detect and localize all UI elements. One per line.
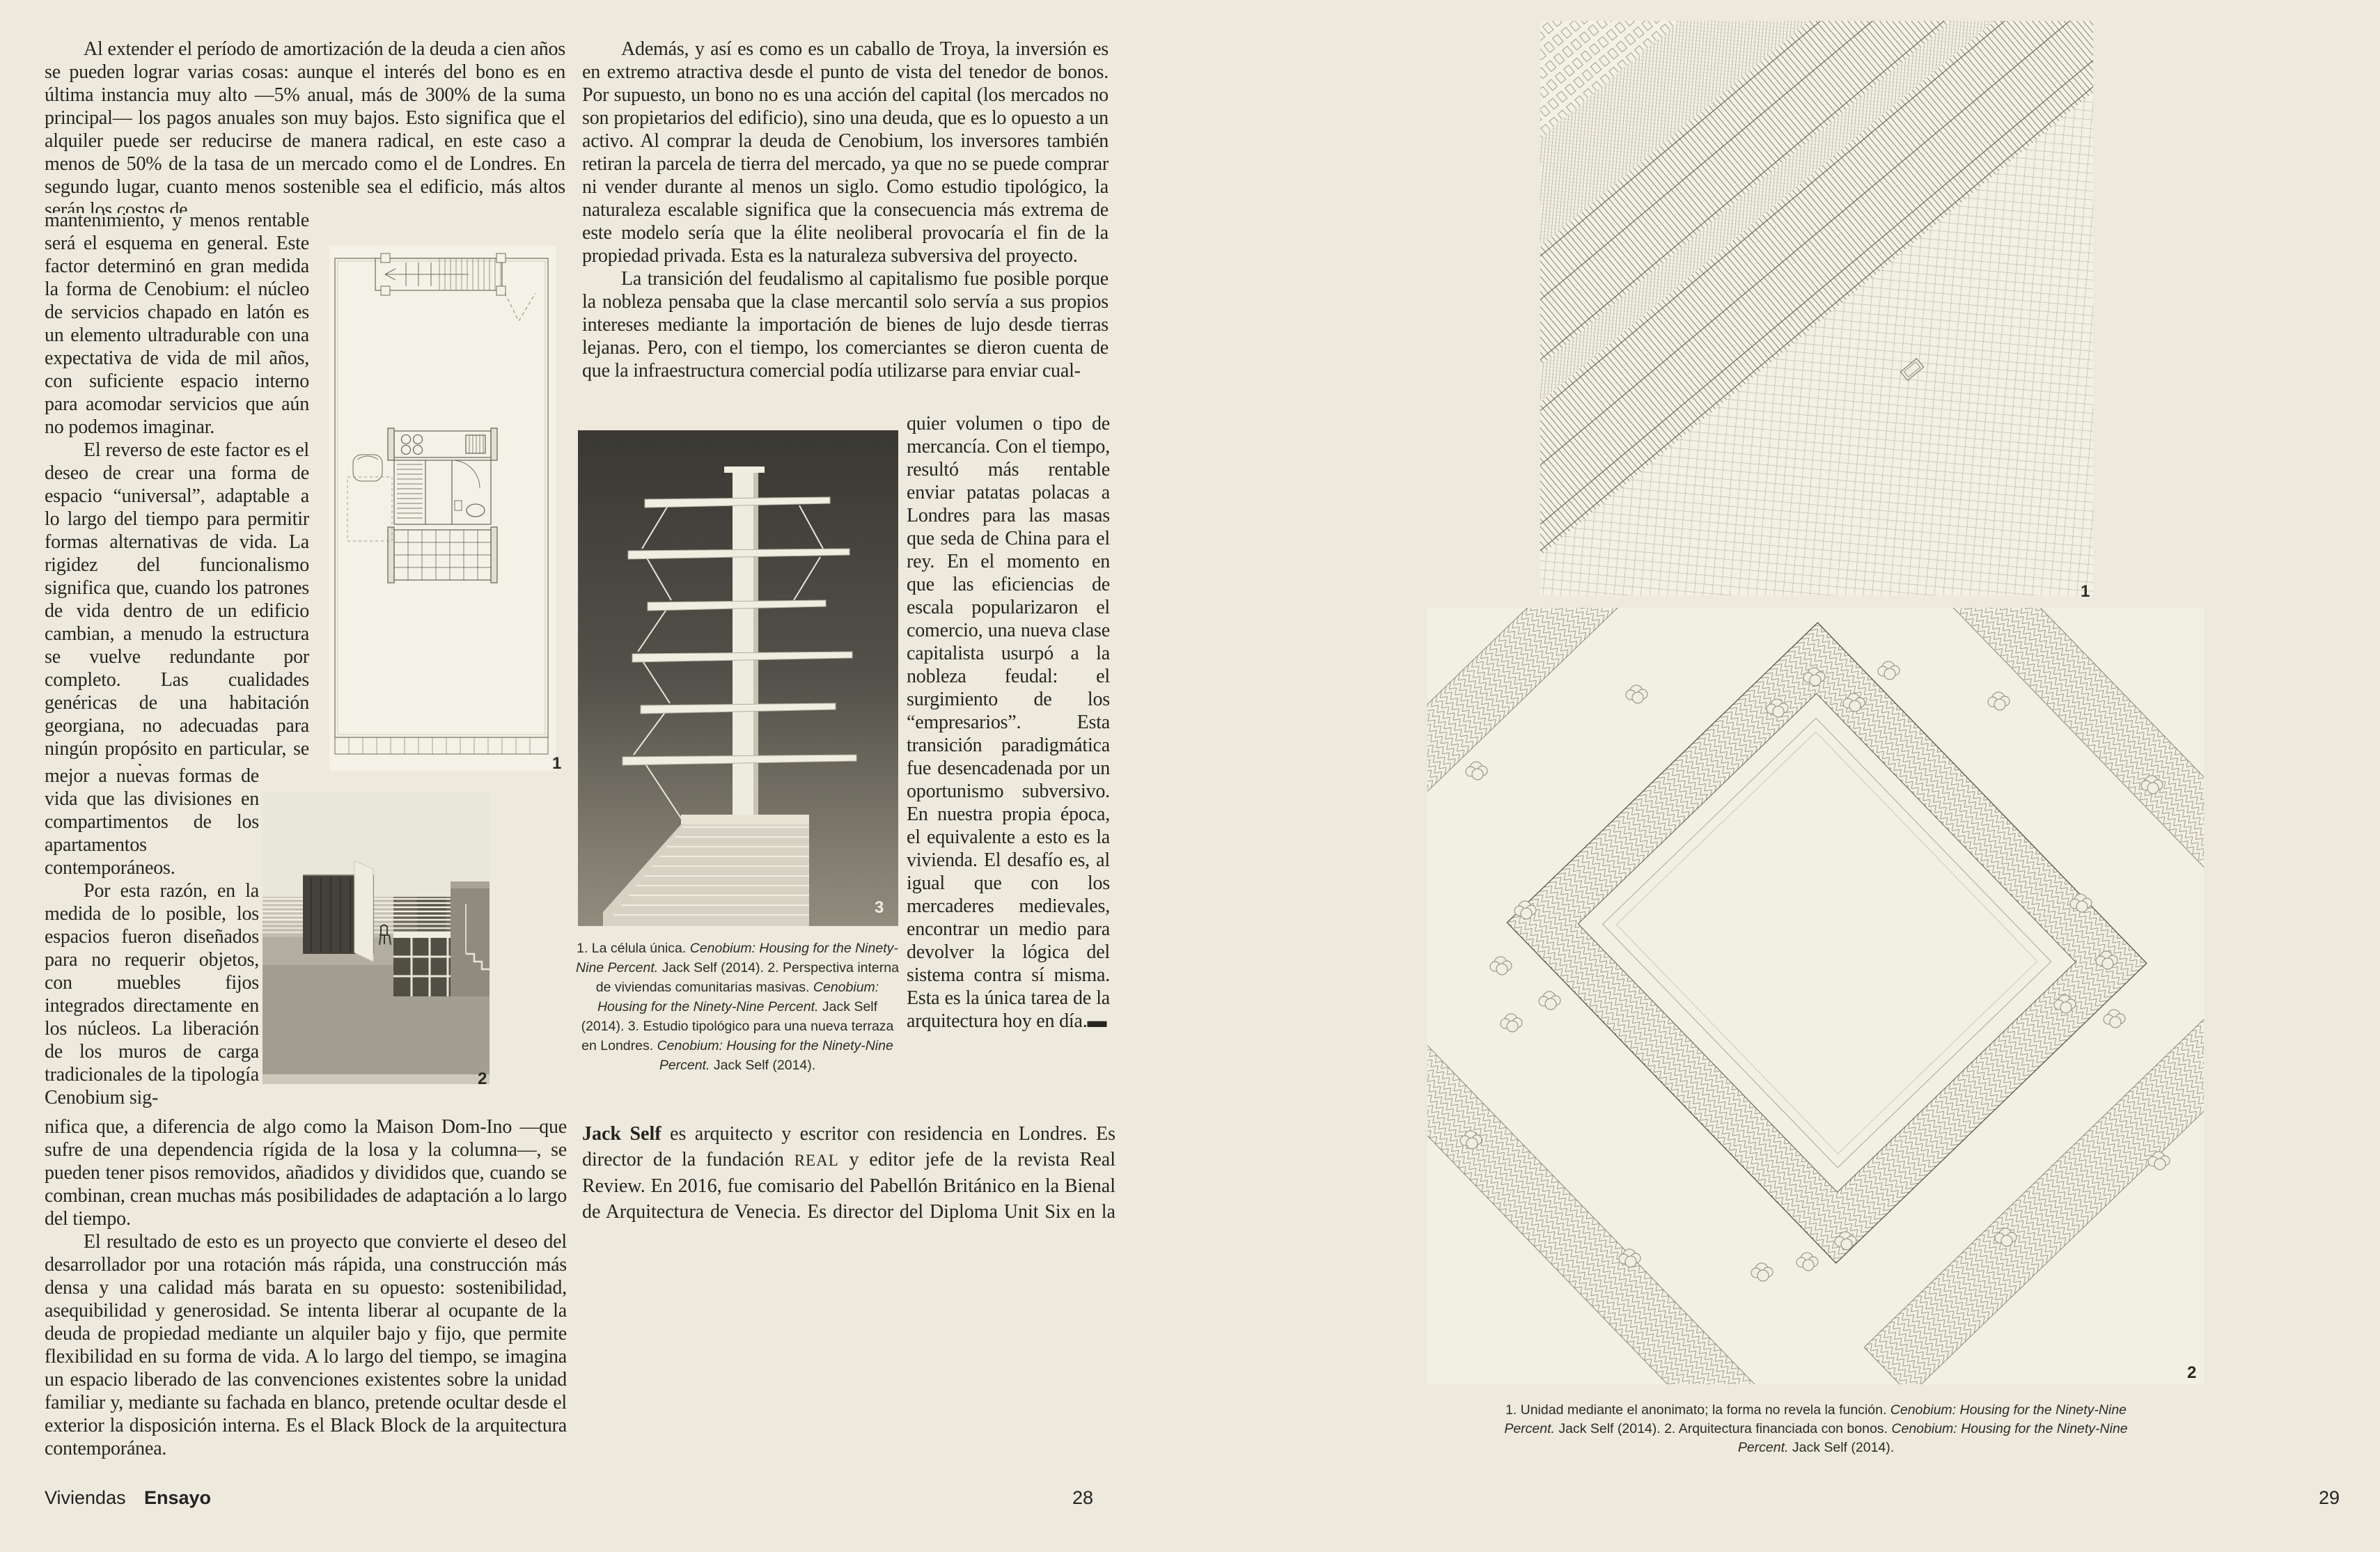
page-number-left: 28 [1072, 1487, 1093, 1509]
text-segment: Jack Self (2014). 2. Arquitectura financ… [1555, 1421, 1891, 1436]
magazine-spread: Al extender el período de amortización d… [0, 0, 2380, 1552]
essay-column-2: Además, y así es como es un caballo de T… [582, 38, 1109, 429]
figure-2-label: 2 [478, 1069, 487, 1089]
figure-1-label: 1 [552, 754, 561, 774]
text-segment: Jack Self (2014). [1788, 1440, 1894, 1455]
page-number-right: 29 [2319, 1487, 2340, 1509]
freestanding-wall [354, 861, 373, 962]
essay-narrow-column-b: mejor a nuevas formas de vida que las di… [45, 765, 259, 1117]
footer-section: Viviendas [45, 1487, 126, 1509]
footer-subsection: Ensayo [144, 1487, 211, 1509]
essay-narrow-column-a: mantenimiento, y menos rentable será el … [45, 209, 309, 766]
text-segment: 1. La célula única. [577, 941, 690, 956]
floor-plan-figure [329, 246, 556, 771]
right-figure-1-label: 1 [2081, 582, 2090, 602]
essay-column-2-narrow: quier volumen o tipo de mercancía. Con e… [907, 412, 1110, 1051]
model-core-column [733, 472, 753, 824]
text-segment: Jack Self (2014). [710, 1058, 815, 1073]
interior-model-photo [263, 792, 490, 1084]
bond-architecture-drawing [1540, 21, 2093, 595]
paragraph: Por esta razón, en la medida de lo posib… [45, 879, 259, 1109]
paragraph: La transición del feudalismo al capitali… [582, 267, 1109, 382]
paragraph: El resultado de esto es un proyecto que … [45, 1230, 567, 1460]
courtyard-block-drawing [1427, 608, 2204, 1384]
typology-model-photo [578, 430, 898, 926]
essay-wide-bottom: nifica que, a diferencia de algo como la… [45, 1115, 567, 1474]
left-figures-caption: 1. La célula única. Cenobium: Housing fo… [575, 939, 900, 1075]
paragraph: El reverso de este factor es el deseo de… [45, 439, 309, 766]
author-bio: Jack Self es arquitecto y escritor con r… [582, 1121, 1115, 1227]
right-figure-2-label: 2 [2187, 1363, 2196, 1383]
core-cabinet [451, 881, 490, 996]
paragraph: mantenimiento, y menos rentable será el … [45, 209, 309, 439]
text-segment: REAL [794, 1152, 839, 1169]
paragraph: nifica que, a diferencia de algo como la… [45, 1115, 567, 1230]
text-segment: 1. Unidad mediante el anonimato; la form… [1505, 1402, 1890, 1418]
figure-3-label: 3 [875, 898, 884, 918]
paragraph: mejor a nuevas formas de vida que las di… [45, 765, 259, 879]
paragraph: Al extender el período de amortización d… [45, 38, 565, 213]
essay-intro-paragraph: Al extender el período de amortización d… [45, 38, 565, 213]
paragraph: quier volumen o tipo de mercancía. Con e… [907, 412, 1110, 1033]
right-figures-caption: 1. Unidad mediante el anonimato; la form… [1483, 1401, 2149, 1457]
text-segment: Jack Self [582, 1123, 661, 1145]
paragraph: Además, y así es como es un caballo de T… [582, 38, 1109, 267]
